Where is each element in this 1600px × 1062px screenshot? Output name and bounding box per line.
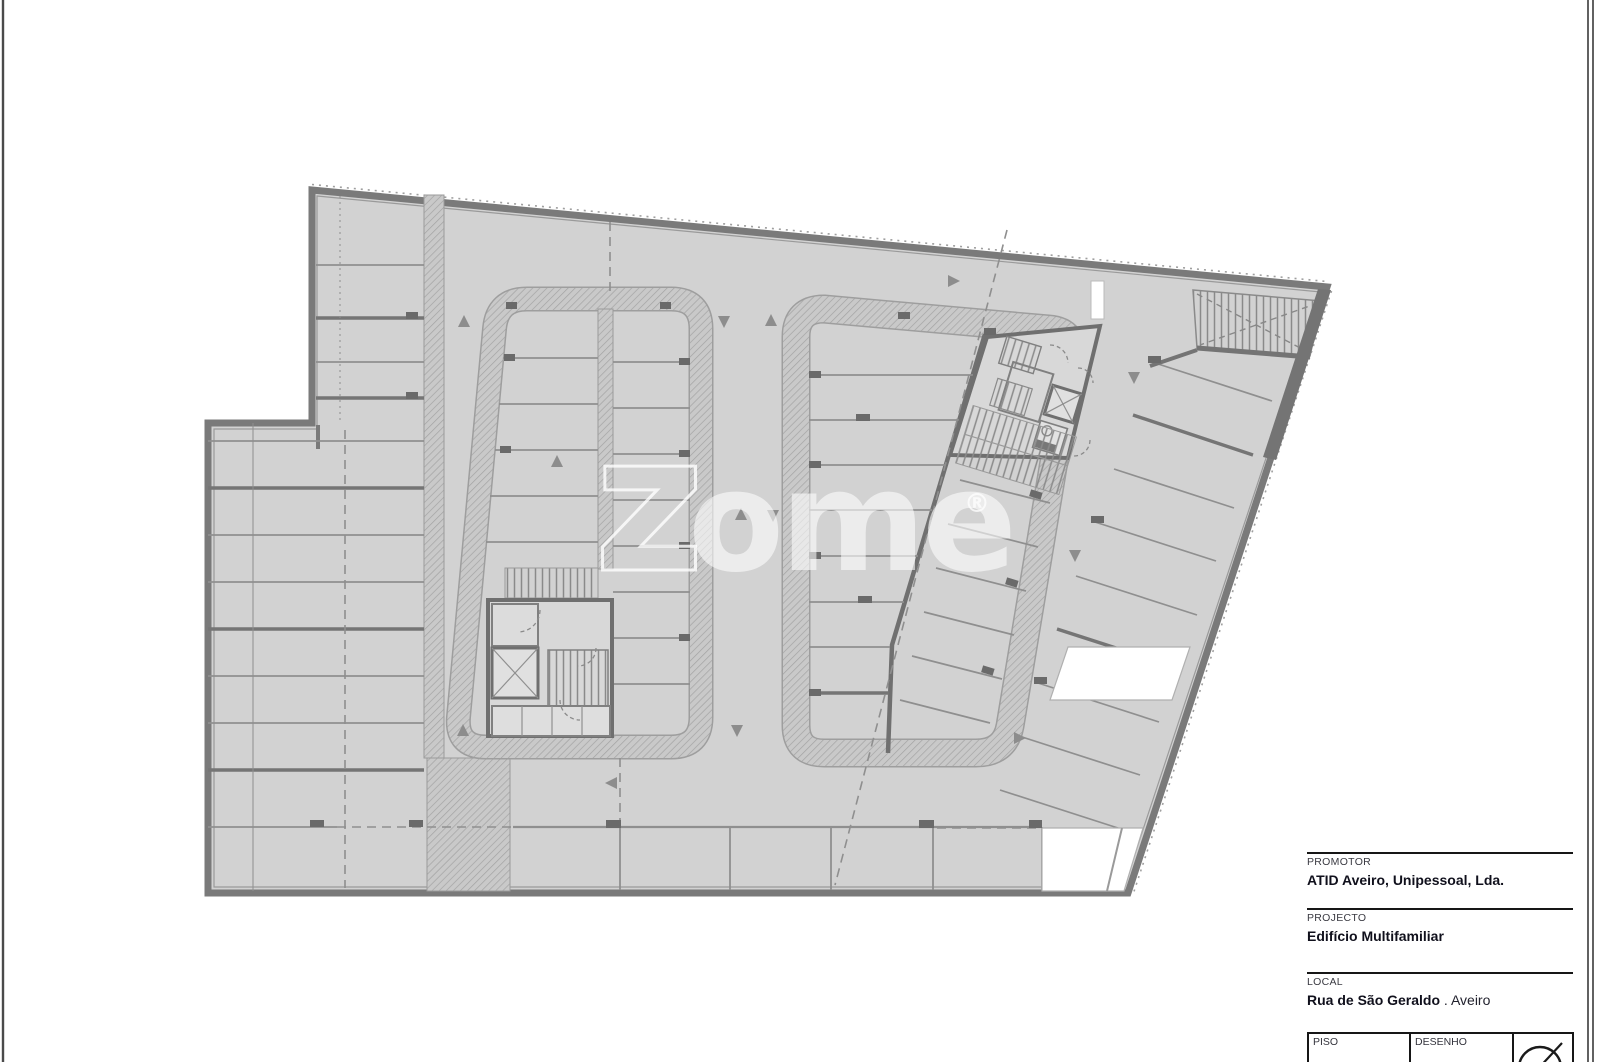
projecto-label: PROJECTO xyxy=(1307,912,1573,924)
logo-cell xyxy=(1514,1034,1566,1062)
registered-mark: ® xyxy=(964,489,990,519)
local-value-city: . Aveiro xyxy=(1440,992,1490,1008)
desenho-cell: DESENHO xyxy=(1411,1034,1514,1062)
watermark-text: ome xyxy=(688,441,1013,604)
compass-logo-icon xyxy=(1514,1034,1566,1062)
local-value: Rua de São Geraldo . Aveiro xyxy=(1307,992,1573,1008)
local-label: LOCAL xyxy=(1307,976,1573,988)
desenho-label: DESENHO xyxy=(1415,1036,1467,1048)
promotor-value: ATID Aveiro, Unipessoal, Lda. xyxy=(1307,872,1573,888)
piso-cell: PISO xyxy=(1309,1034,1411,1062)
promotor-label: PROMOTOR xyxy=(1307,856,1573,868)
local-value-street: Rua de São Geraldo xyxy=(1307,992,1440,1008)
piso-label: PISO xyxy=(1313,1036,1338,1048)
ramp-label-tag xyxy=(1091,281,1104,319)
drawing-sheet: z ome ® PROMOTOR ATID Aveiro, Unipessoal… xyxy=(0,0,1600,1062)
title-block-table: PISO DESENHO xyxy=(1307,1032,1574,1062)
projecto-section: PROJECTO Edifício Multifamiliar xyxy=(1307,908,1573,944)
title-block: PROMOTOR ATID Aveiro, Unipessoal, Lda. P… xyxy=(1307,0,1573,1062)
stair-core-left xyxy=(488,600,612,736)
local-section: LOCAL Rua de São Geraldo . Aveiro xyxy=(1307,972,1573,1008)
projecto-value: Edifício Multifamiliar xyxy=(1307,928,1573,944)
promotor-section: PROMOTOR ATID Aveiro, Unipessoal, Lda. xyxy=(1307,852,1573,888)
